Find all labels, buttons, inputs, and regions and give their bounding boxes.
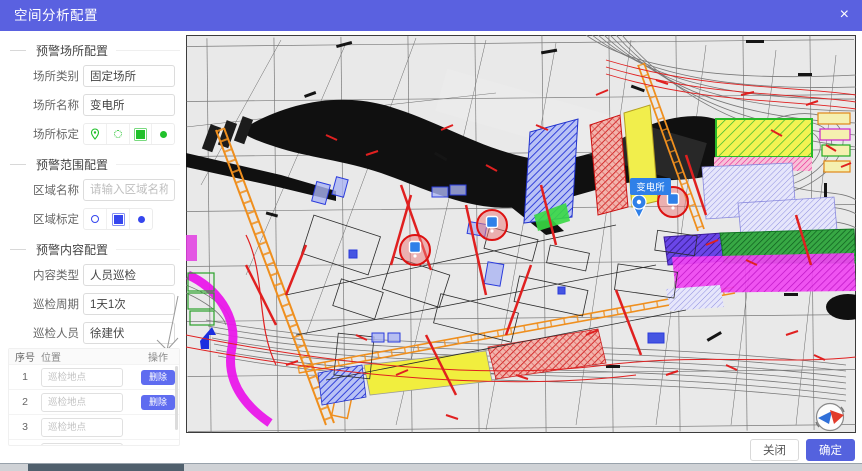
col-action: 操作	[137, 349, 179, 364]
inspection-point-table: 序号 位置 操作 1 删除 2 删除 3	[8, 348, 180, 446]
site-map[interactable]: 变电所	[186, 35, 856, 433]
field-content-type: 内容类型	[0, 264, 186, 286]
section-rule	[116, 164, 180, 165]
section-title: 预警内容配置	[36, 241, 108, 258]
field-range-calibration: 区域标定	[0, 208, 186, 230]
field-place-calibration: 场所标定	[0, 123, 186, 145]
col-index: 序号	[9, 349, 41, 364]
circle-tool-icon[interactable]	[84, 209, 107, 229]
circle-tool-icon[interactable]	[107, 124, 130, 144]
section-dash	[10, 249, 26, 250]
confirm-button[interactable]: 确定	[806, 439, 855, 461]
place-calibration-tools	[83, 123, 175, 145]
section-range-config: 预警范围配置	[0, 156, 186, 173]
section-dash	[10, 164, 26, 165]
place-calibration-label: 场所标定	[33, 126, 83, 142]
spatial-analysis-dialog: 空间分析配置 × 预警场所配置 场所类别 场所名称 场所标定	[0, 0, 862, 471]
field-place-name: 场所名称	[0, 94, 186, 116]
place-category-input[interactable]	[83, 65, 175, 87]
field-place-category: 场所类别	[0, 65, 186, 87]
section-title: 预警场所配置	[36, 42, 108, 59]
row-location-input[interactable]	[41, 418, 123, 437]
inspection-point-marker[interactable]	[400, 235, 430, 265]
table-header: 序号 位置 操作	[9, 349, 179, 364]
dot-tool-icon[interactable]	[130, 209, 152, 229]
dialog-title: 空间分析配置	[14, 0, 98, 31]
table-row: 3	[9, 414, 179, 439]
section-content-config: 预警内容配置	[0, 241, 186, 258]
dialog-titlebar: 空间分析配置 ×	[0, 0, 862, 31]
row-index: 1	[9, 371, 41, 383]
scrollbar-thumb[interactable]	[28, 464, 184, 471]
content-type-input[interactable]	[83, 264, 175, 286]
field-inspect-cycle: 巡检周期	[0, 293, 186, 315]
place-name-input[interactable]	[83, 94, 175, 116]
dialog-footer: 关闭 确定	[750, 439, 855, 461]
row-location-input[interactable]	[41, 368, 123, 387]
table-scrollbar[interactable]	[175, 366, 178, 430]
place-name-label: 场所名称	[33, 97, 83, 113]
section-title: 预警范围配置	[36, 156, 108, 173]
inspect-person-input[interactable]	[83, 322, 175, 344]
inspection-point-marker[interactable]	[477, 210, 507, 240]
delete-button[interactable]: 删除	[141, 395, 175, 410]
row-index: 3	[9, 421, 41, 433]
inspect-person-label: 巡检人员	[33, 325, 83, 341]
delete-button[interactable]: 删除	[141, 370, 175, 385]
row-index: 2	[9, 396, 41, 408]
square-tool-icon[interactable]	[107, 209, 130, 229]
field-inspect-person: 巡检人员	[0, 322, 186, 344]
field-area-name: 区域名称	[0, 179, 186, 201]
close-button[interactable]: 关闭	[750, 439, 799, 461]
area-name-input[interactable]	[83, 179, 175, 201]
square-tool-icon[interactable]	[130, 124, 153, 144]
place-category-label: 场所类别	[33, 68, 83, 84]
substation-marker-label: 变电所	[636, 182, 665, 194]
table-row: 2 删除	[9, 389, 179, 414]
map-pin-tool-icon[interactable]	[84, 124, 107, 144]
section-place-config: 预警场所配置	[0, 42, 186, 59]
table-row: 1 删除	[9, 364, 179, 389]
range-calibration-tools	[83, 208, 153, 230]
range-calibration-label: 区域标定	[33, 211, 83, 227]
content-type-label: 内容类型	[33, 267, 83, 283]
close-icon[interactable]: ×	[840, 0, 849, 30]
table-body: 1 删除 2 删除 3	[9, 364, 179, 445]
inspect-cycle-label: 巡检周期	[33, 296, 83, 312]
section-rule	[116, 249, 180, 250]
table-row-partial	[9, 439, 179, 445]
dot-tool-icon[interactable]	[152, 124, 174, 144]
row-location-input[interactable]	[41, 393, 123, 412]
area-name-label: 区域名称	[33, 182, 83, 198]
horizontal-scrollbar[interactable]	[0, 463, 862, 471]
config-panel: 预警场所配置 场所类别 场所名称 场所标定 预警范围配置	[0, 31, 186, 380]
section-rule	[116, 50, 180, 51]
map-container: 变电所	[186, 35, 856, 433]
compass-icon[interactable]	[816, 404, 844, 431]
section-dash	[10, 50, 26, 51]
row-location-input[interactable]	[41, 443, 123, 446]
inspect-cycle-input[interactable]	[83, 293, 175, 315]
col-location: 位置	[41, 349, 137, 364]
